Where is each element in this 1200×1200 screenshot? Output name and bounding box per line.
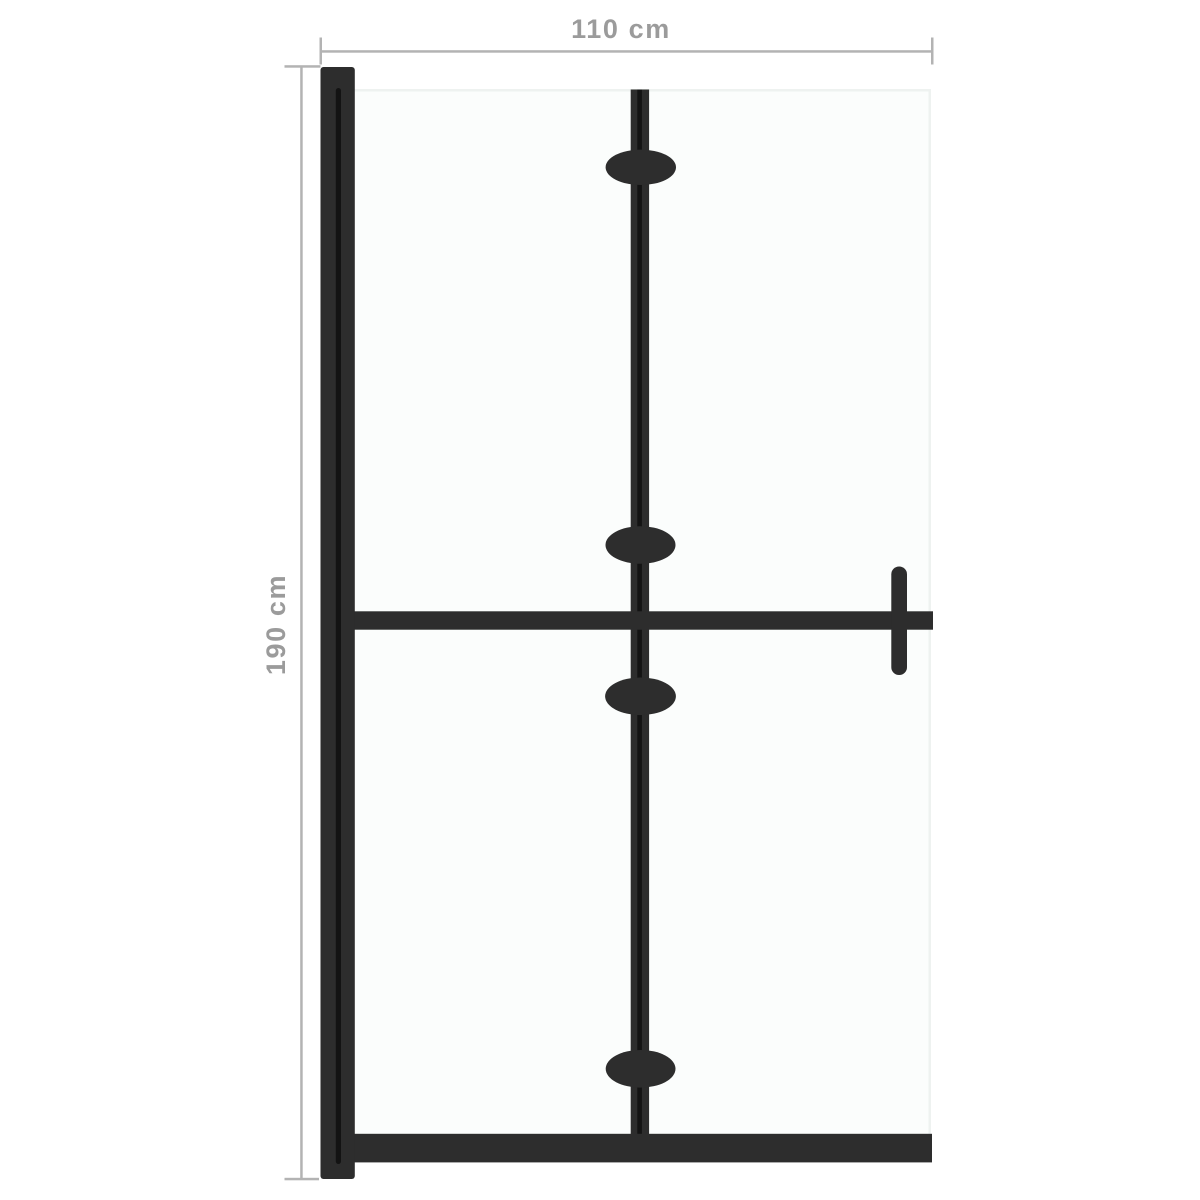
svg-text:190 cm: 190 cm (261, 574, 291, 675)
svg-text:110 cm: 110 cm (571, 14, 671, 44)
